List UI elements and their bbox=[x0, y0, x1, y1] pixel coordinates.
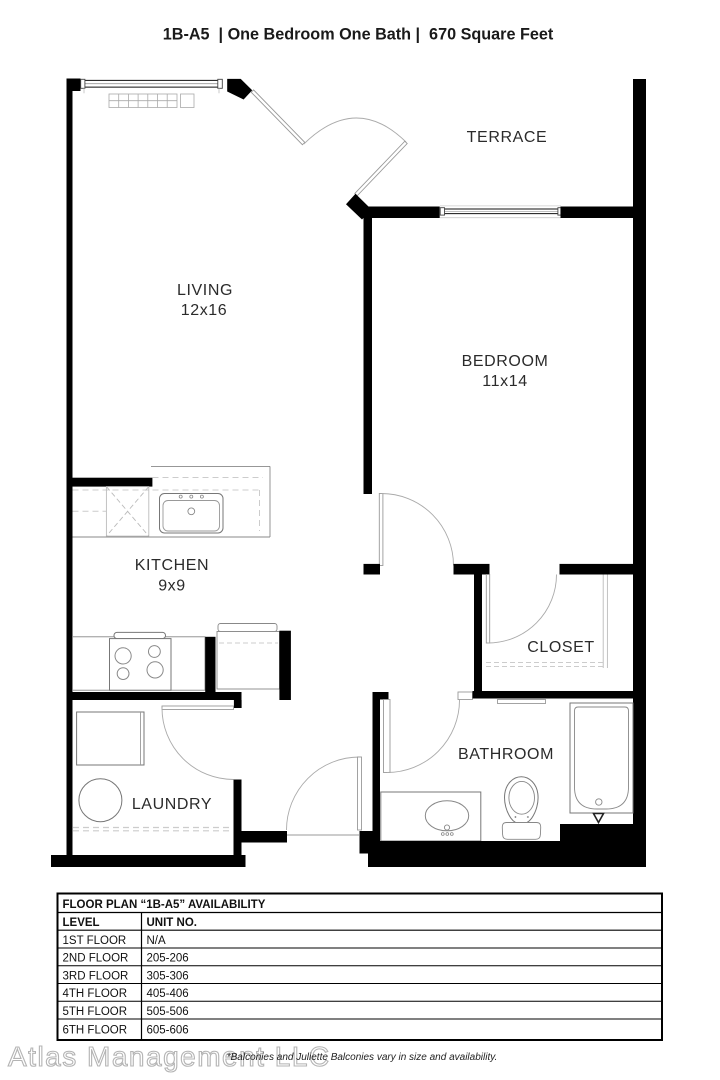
svg-text:UNIT NO.: UNIT NO. bbox=[147, 917, 197, 929]
svg-text:605-606: 605-606 bbox=[147, 1025, 189, 1037]
svg-text:3RD FLOOR: 3RD FLOOR bbox=[63, 971, 129, 983]
svg-text:11x14: 11x14 bbox=[482, 373, 527, 390]
svg-text:6TH FLOOR: 6TH FLOOR bbox=[63, 1025, 128, 1037]
svg-text:12x16: 12x16 bbox=[181, 302, 228, 319]
svg-text:505-506: 505-506 bbox=[147, 1006, 189, 1018]
svg-text:LIVING: LIVING bbox=[177, 282, 233, 299]
svg-text:305-306: 305-306 bbox=[147, 971, 189, 983]
svg-text:CLOSET: CLOSET bbox=[527, 639, 595, 656]
svg-text:2ND FLOOR: 2ND FLOOR bbox=[63, 953, 129, 965]
svg-text:LEVEL: LEVEL bbox=[63, 917, 100, 929]
svg-text:LAUNDRY: LAUNDRY bbox=[132, 796, 212, 813]
svg-text:9x9: 9x9 bbox=[158, 578, 186, 595]
svg-text:N/A: N/A bbox=[147, 935, 167, 947]
svg-text:205-206: 205-206 bbox=[147, 953, 189, 965]
svg-text:KITCHEN: KITCHEN bbox=[135, 557, 209, 574]
svg-text:TERRACE: TERRACE bbox=[467, 129, 548, 146]
svg-text:BATHROOM: BATHROOM bbox=[458, 746, 554, 763]
svg-text:*Balconies and Juliette Balcon: *Balconies and Juliette Balconies vary i… bbox=[227, 1052, 498, 1063]
svg-text:4TH FLOOR: 4TH FLOOR bbox=[63, 988, 128, 1000]
svg-text:405-406: 405-406 bbox=[147, 988, 189, 1000]
svg-text:1ST FLOOR: 1ST FLOOR bbox=[63, 935, 127, 947]
svg-text:5TH FLOOR: 5TH FLOOR bbox=[63, 1006, 128, 1018]
svg-text:FLOOR PLAN “1B-A5” AVAILABILIT: FLOOR PLAN “1B-A5” AVAILABILITY bbox=[63, 899, 266, 911]
svg-text:1B-A5 | One Bedroom One Bath: 1B-A5 | One Bedroom One Bath | 670 Squar… bbox=[163, 26, 554, 44]
svg-text:BEDROOM: BEDROOM bbox=[462, 353, 549, 370]
